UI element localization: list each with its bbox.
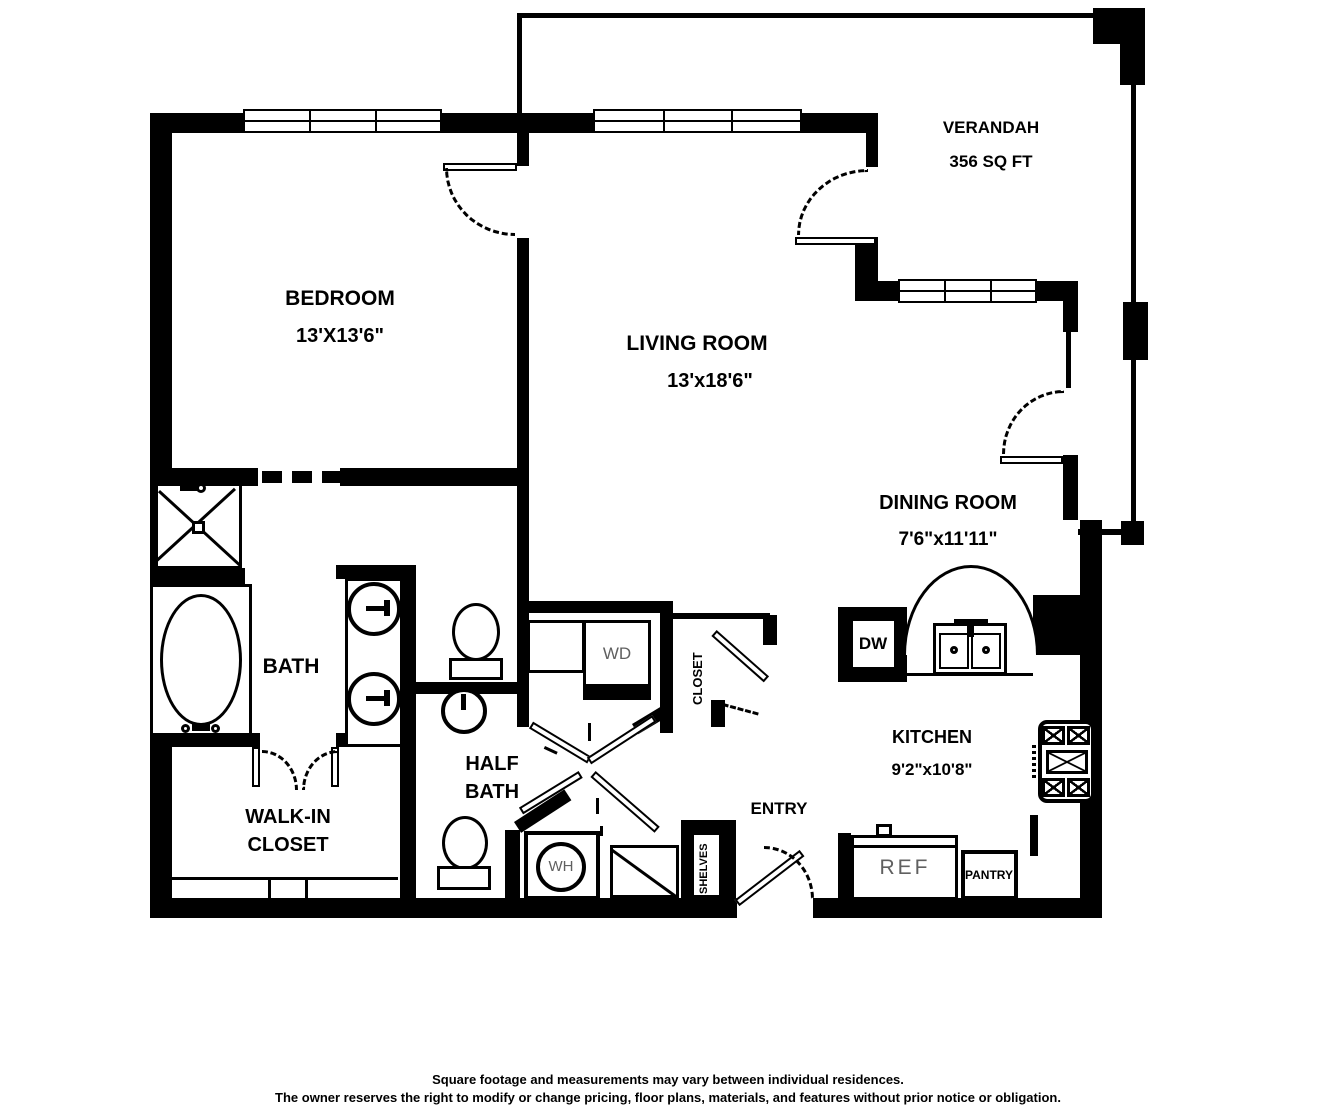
room-label-dining: DINING ROOM bbox=[879, 492, 1017, 515]
window-mullion bbox=[990, 281, 992, 301]
door-leaf bbox=[795, 237, 876, 245]
window-mullion bbox=[900, 290, 1035, 292]
door-leaf bbox=[1000, 456, 1063, 464]
sink-drain bbox=[950, 646, 958, 654]
room-dims-living: 13'x18'6" bbox=[667, 370, 753, 393]
disclaimer-line-1: Square footage and measurements may vary… bbox=[432, 1072, 904, 1087]
room-area-verandah: 356 SQ FT bbox=[949, 152, 1032, 172]
window-mullion bbox=[663, 111, 665, 131]
tub-faucet-icon bbox=[181, 724, 190, 733]
room-dims-dining: 7'6"x11'11" bbox=[899, 529, 998, 551]
door-swing-dash bbox=[596, 798, 599, 814]
stove-burner bbox=[1067, 726, 1090, 745]
sink-faucet-icon bbox=[384, 600, 390, 616]
wall-segment bbox=[1120, 44, 1145, 85]
disclaimer-line-2: The owner reserves the right to modify o… bbox=[275, 1090, 1061, 1105]
wall-segment bbox=[1131, 360, 1136, 523]
door-swing-arc bbox=[262, 750, 298, 790]
door-swing-arc bbox=[445, 168, 515, 236]
closet-drawer-divider bbox=[268, 877, 271, 898]
wall-segment bbox=[340, 468, 517, 486]
window-mullion bbox=[944, 281, 946, 301]
wall-segment bbox=[1123, 302, 1148, 360]
window-mullion bbox=[595, 120, 800, 122]
wall-segment bbox=[1063, 455, 1078, 520]
wall-segment bbox=[673, 613, 770, 619]
stove-burner bbox=[1042, 778, 1065, 797]
toilet-tank bbox=[449, 658, 503, 680]
wall-segment bbox=[1033, 595, 1080, 655]
water-heater-label: WH bbox=[549, 858, 574, 875]
window-mullion bbox=[375, 111, 377, 131]
door-swing-arc bbox=[302, 750, 338, 790]
dishwasher-label: DW bbox=[859, 634, 887, 654]
bathtub-basin bbox=[160, 594, 242, 726]
sink-faucet-icon bbox=[967, 625, 974, 637]
toilet bbox=[442, 816, 488, 870]
door-jamb bbox=[252, 747, 260, 787]
room-label-kitchen: KITCHEN bbox=[892, 727, 972, 748]
opening-dash bbox=[262, 471, 282, 483]
sink-faucet-icon bbox=[461, 694, 466, 710]
wall-segment bbox=[1030, 815, 1038, 856]
wall-segment bbox=[1121, 521, 1144, 545]
wall-segment bbox=[150, 568, 245, 584]
stove-center bbox=[1046, 750, 1088, 774]
room-label-verandah: VERANDAH bbox=[943, 118, 1039, 138]
room-label-entry: ENTRY bbox=[751, 799, 808, 819]
shelves-label: SHELVES bbox=[698, 838, 710, 894]
closet-drawer-divider bbox=[305, 877, 308, 898]
wall-segment bbox=[1063, 281, 1078, 332]
refrigerator-knob bbox=[876, 824, 892, 837]
wall-segment bbox=[866, 133, 878, 167]
washer-dryer-label: WD bbox=[603, 644, 631, 664]
door-leaf bbox=[587, 715, 657, 764]
shower-drain bbox=[192, 521, 205, 534]
pantry-label: PANTRY bbox=[965, 868, 1013, 882]
door-swing-dash bbox=[600, 826, 603, 836]
stove-ticks bbox=[1032, 745, 1036, 779]
room-label-living: LIVING ROOM bbox=[626, 332, 767, 356]
laundry-cabinet bbox=[527, 620, 585, 673]
closet-label: CLOSET bbox=[690, 625, 705, 705]
wall-segment bbox=[517, 13, 522, 115]
toilet bbox=[452, 603, 500, 661]
wall-segment bbox=[838, 833, 851, 898]
toilet-tank bbox=[437, 866, 491, 890]
window bbox=[243, 109, 442, 133]
wall-segment bbox=[1131, 85, 1136, 302]
washer-dryer-base bbox=[586, 684, 648, 697]
window-mullion bbox=[731, 111, 733, 131]
refrigerator-top-line bbox=[854, 845, 955, 848]
door-swing-dash bbox=[544, 746, 558, 755]
room-label-walk-in-closet-2: CLOSET bbox=[247, 834, 328, 857]
wall-segment bbox=[681, 820, 691, 898]
wall-segment bbox=[1093, 8, 1145, 44]
door-swing-arc bbox=[1002, 390, 1064, 454]
tub-faucet-icon bbox=[192, 724, 210, 731]
stove-burner bbox=[1067, 778, 1090, 797]
wall-segment bbox=[505, 830, 520, 898]
wall-segment bbox=[763, 615, 777, 645]
door-swing-arc bbox=[764, 846, 814, 899]
room-dims-bedroom: 13'X13'6" bbox=[296, 325, 384, 348]
room-label-bedroom: BEDROOM bbox=[285, 287, 395, 311]
stove-burner bbox=[1042, 726, 1065, 745]
window bbox=[898, 279, 1037, 303]
sink-faucet-icon bbox=[384, 690, 390, 706]
room-dims-kitchen: 9'2"x10'8" bbox=[892, 760, 973, 780]
wall-segment bbox=[1080, 520, 1102, 918]
door-swing-dash bbox=[722, 703, 759, 715]
room-label-half-bath-2: BATH bbox=[465, 781, 519, 804]
room-label-bath: BATH bbox=[263, 655, 320, 679]
room-label-half-bath-1: HALF bbox=[465, 753, 518, 776]
wall-segment bbox=[1066, 332, 1071, 388]
wall-segment bbox=[517, 601, 663, 613]
door-swing-dash bbox=[588, 723, 591, 741]
refrigerator-label: REF bbox=[880, 856, 931, 880]
wall-segment bbox=[517, 133, 529, 166]
floor-plan: WD CLOSET WH SHELVES DW REF PANTRY VERAN… bbox=[0, 0, 1336, 1113]
wall-segment bbox=[813, 898, 1102, 918]
wall-segment bbox=[722, 820, 736, 898]
window-mullion bbox=[245, 120, 440, 122]
door-leaf bbox=[590, 771, 659, 833]
door-leaf bbox=[711, 630, 769, 682]
opening-dash bbox=[292, 471, 312, 483]
shower-head-icon bbox=[196, 483, 206, 493]
window bbox=[593, 109, 802, 133]
door-swing-arc bbox=[797, 169, 868, 235]
closet-drawers bbox=[162, 877, 398, 898]
door-leaf bbox=[529, 722, 591, 764]
opening-dash bbox=[322, 471, 340, 483]
tub-faucet-icon bbox=[211, 724, 220, 733]
room-label-walk-in-closet-1: WALK-IN bbox=[245, 806, 331, 829]
wall-segment bbox=[517, 13, 1098, 18]
window-mullion bbox=[309, 111, 311, 131]
wall-segment bbox=[150, 898, 737, 918]
sink-drain bbox=[982, 646, 990, 654]
